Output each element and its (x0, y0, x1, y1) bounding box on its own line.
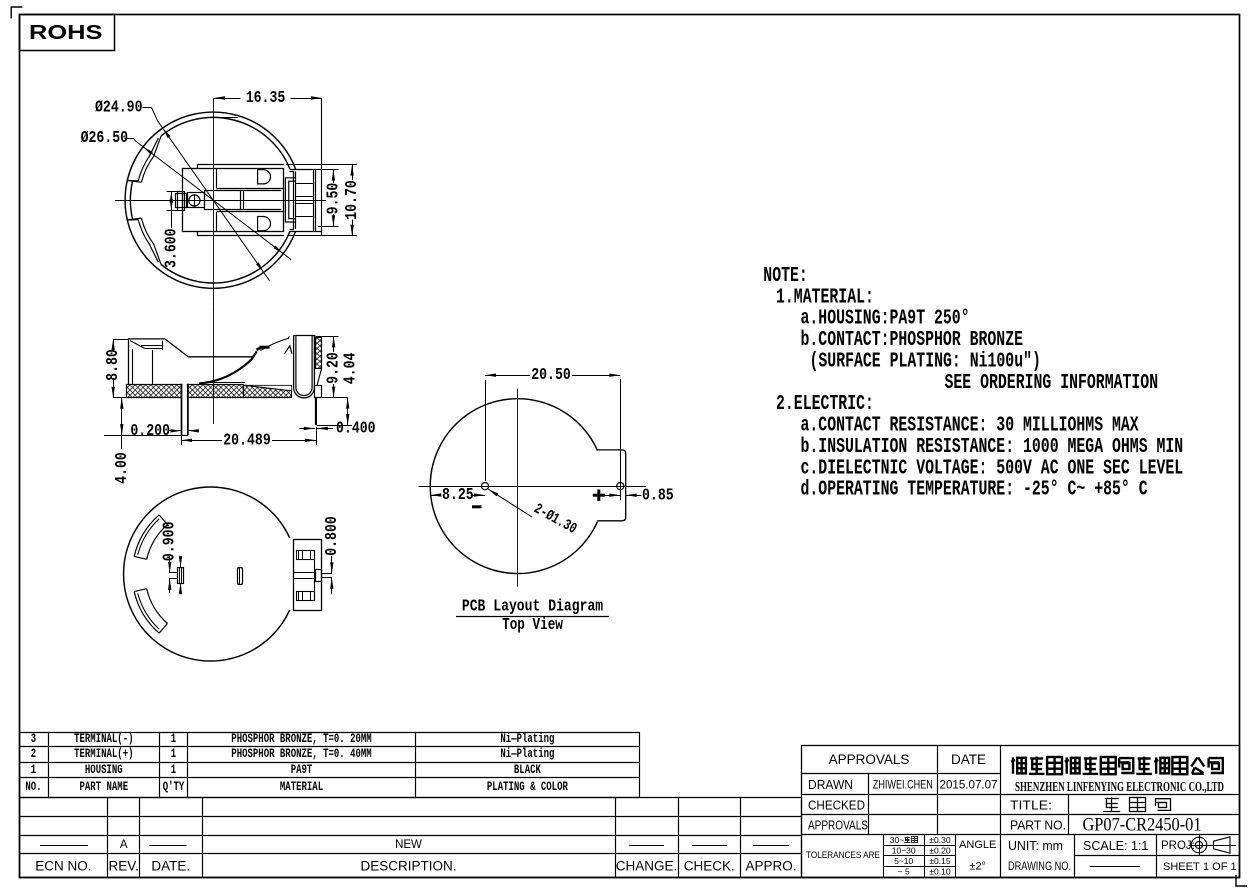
svg-text:PLATING & COLOR: PLATING & COLOR (487, 780, 568, 794)
svg-text:3.600: 3.600 (162, 228, 180, 268)
svg-text:d.OPERATING TEMPERATURE: -25°: d.OPERATING TEMPERATURE: -25° C~ +85° C (801, 479, 1148, 502)
svg-text:Top View: Top View (502, 616, 563, 635)
svg-text:0.800: 0.800 (323, 516, 341, 556)
svg-text:DESCRIPTION.: DESCRIPTION. (360, 859, 456, 874)
svg-text:NOTE:: NOTE: (763, 265, 808, 288)
svg-text:1: 1 (31, 763, 36, 777)
svg-text:5~10: 5~10 (894, 856, 913, 866)
svg-text:±0.10: ±0.10 (929, 867, 950, 877)
svg-text:a.CONTACT RESISTANCE: 30 MILLI: a.CONTACT RESISTANCE: 30 MILLIOHMS MAX (801, 415, 1139, 438)
svg-text:CHANGE.: CHANGE. (616, 859, 678, 874)
svg-text:PART NAME: PART NAME (80, 780, 129, 794)
svg-text:20.50: 20.50 (531, 366, 571, 384)
svg-text:2015.07.07: 2015.07.07 (940, 778, 998, 792)
svg-text:TERMINAL(-): TERMINAL(-) (74, 732, 133, 746)
svg-text:b.CONTACT:PHOSPHOR BRONZE: b.CONTACT:PHOSPHOR BRONZE (801, 329, 1024, 352)
svg-text:SEE ORDERING INFORMATION: SEE ORDERING INFORMATION (945, 372, 1159, 395)
svg-text:ROHS: ROHS (29, 21, 103, 44)
svg-text:ZHIWEI.CHEN: ZHIWEI.CHEN (873, 778, 933, 792)
svg-text:DRAWING NO.: DRAWING NO. (1008, 861, 1071, 873)
svg-text:c.DIELECTNIC VOLTAGE: 500V AC: c.DIELECTNIC VOLTAGE: 500V AC ONE SEC LE… (801, 457, 1184, 480)
svg-text:10~30: 10~30 (892, 845, 916, 855)
svg-text:9.20: 9.20 (325, 352, 343, 384)
svg-text:1: 1 (171, 732, 176, 746)
svg-text:A: A (120, 839, 128, 851)
svg-text:1: 1 (171, 747, 176, 761)
svg-text:DATE.: DATE. (151, 859, 190, 874)
svg-text:DRAWN: DRAWN (808, 777, 853, 792)
svg-text:±0.20: ±0.20 (929, 845, 950, 855)
svg-text:PART NO.: PART NO. (1010, 818, 1066, 833)
svg-text:4.04: 4.04 (342, 352, 360, 384)
svg-text:ECN NO.: ECN NO. (35, 859, 91, 874)
svg-text:SCALE:: SCALE: (1083, 839, 1127, 853)
svg-text:b.INSULATION RESISTANCE: 1000: b.INSULATION RESISTANCE: 1000 MEGA OHMS … (801, 436, 1184, 459)
svg-text:4.00: 4.00 (113, 452, 131, 484)
svg-text:GP07-CR2450-01: GP07-CR2450-01 (1083, 815, 1202, 836)
svg-text:3: 3 (31, 732, 36, 746)
svg-text:Q'TY: Q'TY (163, 780, 185, 794)
svg-text:NEW: NEW (395, 839, 422, 851)
svg-text:0.900: 0.900 (161, 522, 179, 562)
svg-text:1.MATERIAL:: 1.MATERIAL: (776, 286, 874, 309)
svg-text:±0.15: ±0.15 (929, 856, 950, 866)
svg-text:0.85: 0.85 (642, 487, 674, 505)
svg-text:Ø24.90: Ø24.90 (95, 99, 143, 117)
svg-text:2: 2 (31, 747, 36, 761)
svg-text:(SURFACE PLATING: Ni100u″): (SURFACE PLATING: Ni100u″) (810, 350, 1041, 373)
svg-text:CHECKED: CHECKED (808, 798, 865, 813)
svg-text:TITLE:: TITLE: (1010, 798, 1052, 813)
svg-text:ANGLE: ANGLE (959, 839, 996, 851)
svg-text:2.ELECTRIC:: 2.ELECTRIC: (776, 393, 874, 416)
svg-text:SHEET: SHEET (1163, 861, 1200, 873)
svg-text:20.489: 20.489 (223, 431, 271, 449)
svg-text:APPROVALS: APPROVALS (808, 818, 868, 833)
svg-text:HOUSING: HOUSING (85, 763, 123, 777)
svg-text:CHECK.: CHECK. (684, 859, 735, 874)
svg-text:0.400: 0.400 (336, 419, 376, 437)
svg-text:~ 5: ~ 5 (898, 867, 910, 877)
svg-text:9.50: 9.50 (324, 183, 342, 215)
svg-text:1: 1 (171, 763, 176, 777)
svg-text:NO.: NO. (25, 780, 41, 794)
svg-text:APPROVALS: APPROVALS (829, 752, 910, 767)
svg-text:PA9T: PA9T (291, 763, 313, 777)
svg-text:30~: 30~ (890, 835, 904, 845)
svg-text:TOLERANCES ARE: TOLERANCES ARE (806, 850, 880, 861)
svg-text:Ø26.50: Ø26.50 (81, 129, 129, 147)
svg-text:PHOSPHOR BRONZE, T=0. 20MM: PHOSPHOR BRONZE, T=0. 20MM (231, 732, 371, 746)
svg-text:UNIT: mm: UNIT: mm (1008, 839, 1063, 853)
svg-text:PHOSPHOR BRONZE, T=0. 40MM: PHOSPHOR BRONZE, T=0. 40MM (231, 747, 371, 761)
svg-text:1:1: 1:1 (1131, 839, 1148, 853)
svg-text:0.200: 0.200 (130, 422, 170, 440)
svg-text:±2°: ±2° (969, 860, 986, 872)
svg-text:Ni—Plating: Ni—Plating (500, 747, 554, 761)
svg-text:MATERIAL: MATERIAL (280, 780, 323, 794)
svg-text:a.HOUSING:PA9T 250°: a.HOUSING:PA9T 250° (801, 308, 970, 331)
svg-text:10.70: 10.70 (343, 180, 361, 220)
svg-text:TERMINAL(+): TERMINAL(+) (74, 747, 133, 761)
svg-text:8.80: 8.80 (104, 349, 122, 381)
svg-text:BLACK: BLACK (514, 763, 541, 777)
svg-text:APPRO.: APPRO. (745, 859, 796, 874)
svg-text:±0.30: ±0.30 (929, 835, 950, 845)
svg-text:16.35: 16.35 (246, 89, 286, 107)
svg-text:8.25: 8.25 (442, 486, 474, 504)
svg-text:DATE: DATE (951, 752, 986, 767)
svg-text:PCB Layout Diagram: PCB Layout Diagram (462, 598, 603, 617)
svg-text:REV.: REV. (109, 859, 139, 874)
svg-text:Ni—Plating: Ni—Plating (500, 732, 554, 746)
svg-text:1 OF 1: 1 OF 1 (1203, 861, 1237, 873)
svg-text:SHENZHEN LINFENYING ELECTRONIC: SHENZHEN LINFENYING ELECTRONIC CO.,LTD (1015, 779, 1224, 794)
